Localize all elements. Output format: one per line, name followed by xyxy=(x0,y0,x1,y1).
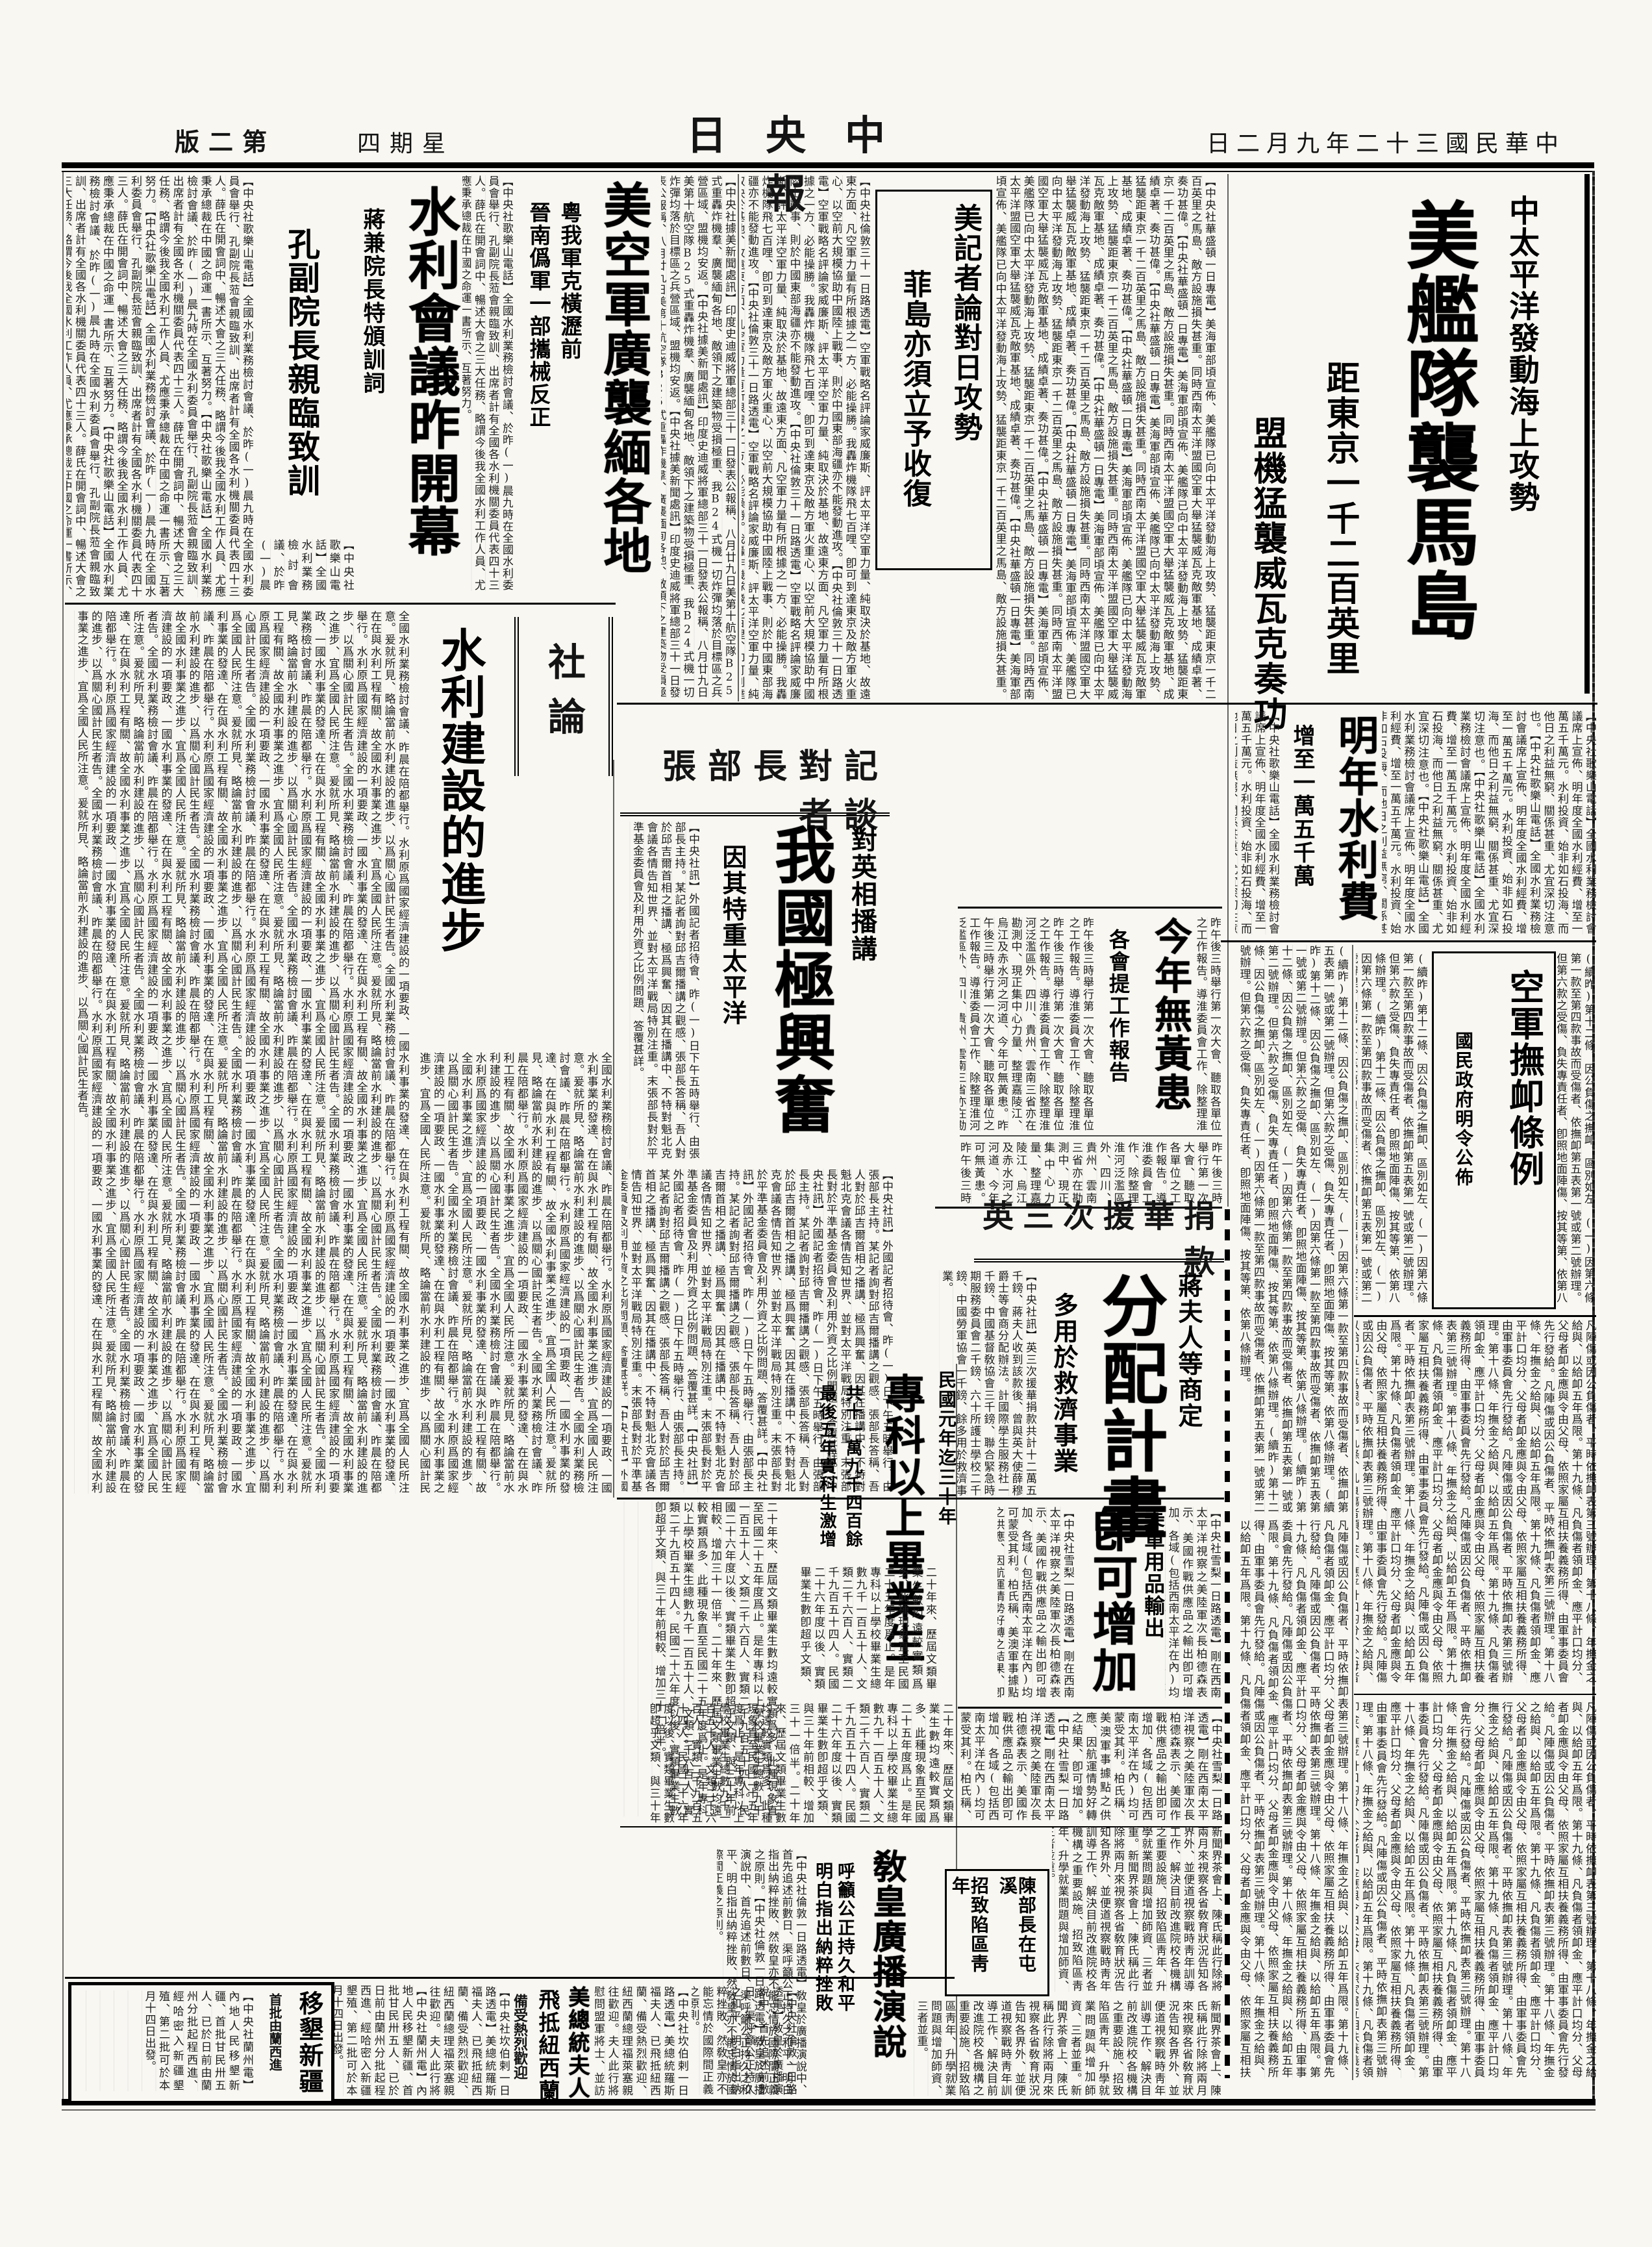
exports-headline: 卽可增加 xyxy=(1078,1507,1135,1701)
chang-kicker: 對英相播講 xyxy=(839,826,875,982)
firstlady-headline-2: 飛抵紐西蘭 xyxy=(530,1989,558,2102)
rule-under-top-band xyxy=(617,703,1597,705)
chen-body-side: 新聞界茶會上、陳氏稱此行除將兩月來視察各省敎育狀況告知各界外、並便道視察戰時靑年… xyxy=(1052,1826,1222,1992)
waterconf-deck-1: 蔣兼院長特頒訓詞 xyxy=(353,208,383,429)
editorial-title: 水利建設的進步 xyxy=(421,627,483,1029)
firstlady-deck: 備受熱烈歡迎 xyxy=(510,1994,530,2098)
header-rule-thick xyxy=(62,162,1594,168)
pension-body-left: (續昨)第十二條、因公負傷之撫卹、區別如左、(一)因第六條第一款至第四款事故而受… xyxy=(1356,953,1427,1303)
bottom-mid-body: 【中央社倫敦一日路透電】敎皇於廣播演說中、首先追述前數日、渠呼籲公正持久之和平、… xyxy=(692,1986,797,2095)
chen-headline-line2: 招致陷區靑年 xyxy=(958,1876,988,1990)
rule-right-band-mid xyxy=(1354,1694,1596,1695)
editorial-body-2: 全國水利業務檢討會議、昨晨在陪都舉行。水利原爲國家經濟建設的一項要政、一國水利事… xyxy=(417,1052,612,1494)
reporters-body: 【中央社倫敦三十一日路透電】空軍戰略名評論家威廉斯、評太平洋空軍力量、純取決於基… xyxy=(742,175,870,700)
rule-under-exports xyxy=(958,1707,1222,1709)
reporters-headline-line2: 菲島亦須立予收復 xyxy=(888,270,929,542)
flagship-right-bar xyxy=(1584,174,1590,694)
edition-label: 第二版 xyxy=(166,122,276,155)
migration-headline: 移墾新疆 xyxy=(287,1990,322,2094)
chang-deck: 因其特重太平洋 xyxy=(712,844,745,1046)
weekday-label: 星期四 xyxy=(338,125,455,156)
donation-header: 英三次援華捐款 xyxy=(974,1213,1224,1262)
noflood-body-left: 昨午後三時舉行第一次大會、聽取各單位之工作報告。導淮委員會工作、除整理淮河泛濫區… xyxy=(1068,917,1094,1131)
flagship-headline: 美艦隊襲馬島 xyxy=(1388,198,1474,692)
editorial-label-box: 社論 xyxy=(514,617,613,776)
waterconf-deck-2: 孔副院長親臨致訓 xyxy=(273,227,318,526)
rule-above-noflood xyxy=(958,907,1222,909)
noflood-body-left-col: 昨午後三時舉行第一次大會、聽取各單位之工作報告。導淮委員會工作、除整理淮河泛濫區… xyxy=(960,917,1064,1131)
migration-deck: 首批由蘭西進 xyxy=(266,1993,284,2094)
right-band-rule xyxy=(1352,945,1353,2080)
graduates-deck-2: 最後五年實科生激增 xyxy=(813,1385,835,1560)
pension-deck: 國民政府明令公佈 xyxy=(1444,1031,1473,1226)
waterbudget-headline: 明年水利費 xyxy=(1318,714,1375,938)
burma-deck-2: 晉南僞軍一部攜械反正 xyxy=(519,201,549,565)
burma-deck-1: 粵我軍克橫瀝前 xyxy=(551,201,581,474)
donation-header-text: 英三次援華捐款 xyxy=(974,1190,1224,1281)
graduates-body-col: 二十年來、歷屆文類畢業生數均遠較實類爲多、此種現象直至民國二十五年度爲止。是年專… xyxy=(800,1566,936,1690)
right-band-body-1: 凡陣傷或因公負傷者、平時依撫卹表第三號辦理。第十八條、年撫金之給與、以給卹五年爲… xyxy=(1356,1320,1596,1683)
chen-body-lower: 新聞界茶會上、陳氏稱此行除將兩月來視察各省敎育狀況告知各界外、並便道視察戰時靑年… xyxy=(909,2000,1221,2096)
reporters-headline-box: 美記者論對日攻勢 菲島亦須立予收復 xyxy=(875,190,992,570)
mid-right-column-upper: (續昨)第十二條、因公負傷之撫卹、區別如左、(一)因第六條第一款至第四款事故而受… xyxy=(1238,945,1348,1513)
graduates-body: 二十年來、歷屆文類畢業生數均遠較實類爲多、此種現象直至民國二十五年度爲止。是年專… xyxy=(651,1703,953,1824)
rule-noflood-inner xyxy=(960,1135,1222,1136)
ornamental-divider xyxy=(1225,1209,1230,2078)
rule-under-waterbudget xyxy=(1221,940,1596,942)
migration-box: 移墾新疆 首批由蘭西進 【中央社蘭州電】內地人民移墾新疆、首批甘民卅五人、已於日… xyxy=(68,1982,334,2104)
donation-deck: 多用於救濟事業 xyxy=(1043,1292,1077,1500)
flagship-deck-1: 距東京一千二百英里 xyxy=(1308,360,1357,698)
chang-left-rule xyxy=(613,760,614,1498)
waterconf-body-mid: 【中央社歌樂山電話】全國水利業務檢討會議、於昨(一)晨九時在全國水利委員會舉行、… xyxy=(257,539,354,591)
pope-deck-2: 明白指出納粹挫敗 xyxy=(809,1862,831,2024)
flagship-kicker: 中太平洋發動海上攻勢 xyxy=(1491,195,1536,546)
masthead: 中央日報 xyxy=(649,103,961,157)
burma-headline: 美空軍廣襲緬各地 xyxy=(583,181,648,603)
exports-kicker: 美軍用品輸出 xyxy=(1135,1507,1164,1656)
newspaper-page: 第二版 星期四 中央日報 中華民國三十二年九月二日 中太平洋發動海上攻勢 美艦隊… xyxy=(0,0,1652,2247)
exports-body: 【中央社雪梨一日路透電】剛在西南太平洋視察之美陸軍次長柏德森表示、美國作戰供應品… xyxy=(997,1507,1074,1698)
chang-header: 張部長對記者談 xyxy=(620,763,890,816)
rule-under-pension xyxy=(1354,1315,1596,1317)
noflood-body-right-col: 昨午後三時舉行第一次大會、聽取各單位之工作報告。導淮委員會工作、除整理淮河泛濫區… xyxy=(1195,917,1221,1131)
exports-body-right: 【中央社雪梨一日路透電】剛在西南太平洋視察之美陸軍次長柏德森表示、美國作戰供應品… xyxy=(1165,1507,1221,1698)
donation-kicker: 蔣夫人等商定 xyxy=(1168,1273,1201,1442)
graduates-kicker: 民國元年迄三十年 xyxy=(931,1370,956,1539)
mid-right-column-lower: 凡陣傷或因公負傷者、平時依撫卹表第三號辦理。第十八條、年撫金之給與、以給卹五年爲… xyxy=(1238,1520,1348,2078)
burma-body: 【中央社據美新聞處訊】印度史迪威將軍總部三十一日發表公報稱、八月廿九日美第十航空… xyxy=(661,175,736,698)
waterconf-body-right: 【中央社歌樂山電話】全國水利業務檢討會議、於昨(一)晨九時在全國水利委員會舉行、… xyxy=(462,175,513,591)
flagship-body: 【中央社華盛頓一日專電】美海軍部頃宣佈、美艦隊已向中太平洋發動海上攻勢、猛襲距東… xyxy=(995,175,1216,700)
right-band-body-2: 凡陣傷或因公負傷者、平時依撫卹表第三號辦理。第十八條、年撫金之給與、以給卹五年爲… xyxy=(1356,1701,1596,2078)
firstlady-headline: 美總統夫人 xyxy=(557,1986,588,2102)
pope-deck-1: 呼籲公正持久和平 xyxy=(831,1862,853,2024)
waterconf-headline: 水利會議昨開幕 xyxy=(388,185,457,588)
chang-headline: 我國極興奮 xyxy=(755,823,831,1155)
pope-headline: 敎皇廣播演說 xyxy=(855,1849,904,2070)
chang-body-right: 【中央社訊】外國記者招待會、昨(一)日下午五時舉行、由張部長主持。某記者詢對邱吉… xyxy=(621,822,699,1159)
firstlady-body-right: 【中央社坎伯剌一日路透電】美總統羅斯福夫人、已飛抵紐西蘭、備受熱烈歡迎、紐西蘭總… xyxy=(592,1986,688,2096)
chen-headline-box: 陳部長在屯溪 招致陷區靑年 xyxy=(945,1869,1049,1996)
col-rule-1 xyxy=(738,174,739,701)
editorial-body: 全國水利業務檢討會議、昨晨在陪都舉行。水利原爲國家經濟建設的一項要政、一國水利事… xyxy=(66,610,409,1494)
waterbudget-body-right: 【中央社歌樂山電話】全國水利業務檢討會議席上宣佈、明年度全國水利經費、增至一萬五… xyxy=(1382,710,1596,935)
migration-body: 【中央社蘭州電】內地人民移墾新疆、首批甘民卅五人、已於日前由蘭州分批起程西進、經… xyxy=(78,1990,253,2091)
pension-headline-box: 空軍撫卹條例 國民政府明令公佈 xyxy=(1432,951,1556,1309)
rule-left-editorial-top xyxy=(65,603,616,605)
noflood-headline: 今年無黃患 xyxy=(1135,917,1190,1131)
waterbudget-body-left: 【中央社歌樂山電話】全國水利業務檢討會議席上宣佈、明年度全國水利經費、增至一萬五… xyxy=(1235,710,1279,935)
editorial-label: 社論 xyxy=(536,642,591,751)
noflood-deck: 各會提工作報告 xyxy=(1100,929,1129,1098)
graduates-deck-1: 共十一萬九千四百餘 xyxy=(839,1385,861,1560)
firstlady-body-left: 【中央社坎伯剌一日路透電】美總統羅斯福夫人、已飛抵紐西蘭、備受熱烈歡迎、紐西蘭總… xyxy=(429,1986,510,2096)
pension-headline: 空軍撫卹條例 xyxy=(1492,969,1542,1229)
left-page-border xyxy=(62,171,64,2103)
date-line: 中華民國三十二年九月二日 xyxy=(1162,125,1565,156)
header-rule-thin xyxy=(62,171,1594,172)
bottom-rule-thin xyxy=(62,2109,1596,2111)
exports-body-lower: 【中央社雪梨一日路透電】剛在西南太平洋視察之美陸軍次長柏德森表示、美國作戰供應品… xyxy=(960,1712,1222,1821)
waterbudget-deck: 增至一萬五千萬 xyxy=(1283,724,1313,906)
rule-above-bottom-band xyxy=(65,1977,955,1979)
migration-body-side: 【中央社蘭州電】內地人民移墾新疆、首批甘民卅五人、已於日前由蘭州分批起程西進、經… xyxy=(332,1985,427,2096)
top-left-body: 【中央社歌樂山電話】全國水利業務檢討會議、於昨(一)晨九時在全國水利委員會舉行、… xyxy=(66,175,253,597)
chen-headline-line1: 陳部長在屯溪 xyxy=(1006,1876,1036,1990)
main-divider-rule xyxy=(1227,174,1229,1207)
pension-body-far-right: (續昨)第十二條、因公負傷之撫卹、區別如左、(一)因第六條第一款至第四款事故而受… xyxy=(1557,953,1595,1303)
reporters-headline-line1: 美記者論對日攻勢 xyxy=(938,203,980,476)
